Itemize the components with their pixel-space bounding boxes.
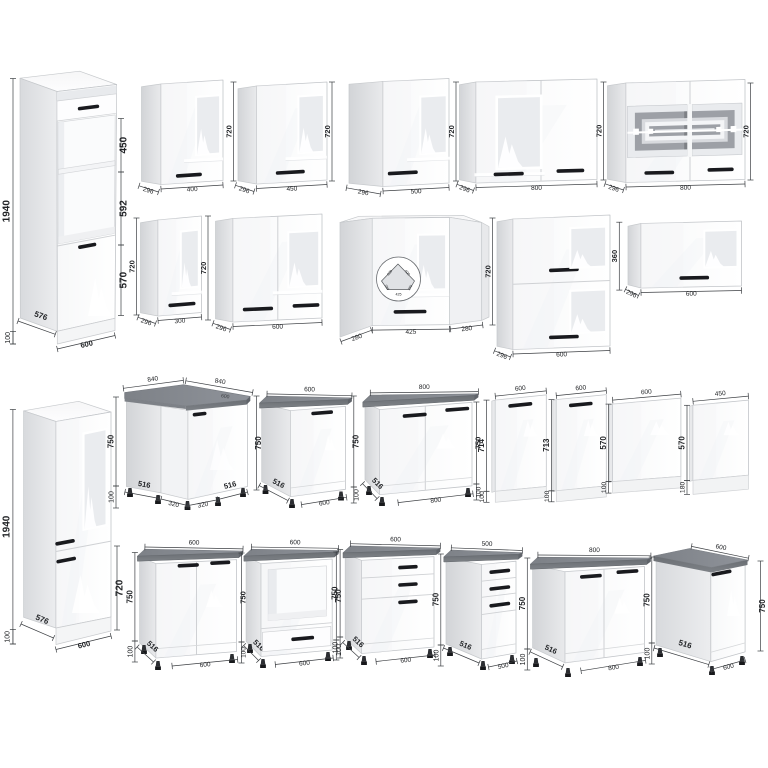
svg-text:100: 100 bbox=[544, 490, 551, 502]
svg-text:750: 750 bbox=[331, 586, 340, 600]
svg-text:600: 600 bbox=[686, 291, 697, 298]
svg-text:100: 100 bbox=[601, 482, 608, 494]
svg-text:425: 425 bbox=[405, 329, 416, 336]
svg-text:450: 450 bbox=[286, 185, 298, 193]
svg-text:1940: 1940 bbox=[2, 200, 13, 223]
svg-text:400: 400 bbox=[187, 186, 199, 194]
svg-text:600: 600 bbox=[515, 385, 527, 393]
svg-text:840: 840 bbox=[147, 375, 159, 383]
svg-text:100: 100 bbox=[353, 489, 360, 501]
svg-text:280: 280 bbox=[461, 325, 473, 333]
svg-text:450: 450 bbox=[715, 390, 727, 398]
svg-text:600: 600 bbox=[390, 536, 401, 543]
svg-text:100: 100 bbox=[333, 642, 340, 654]
svg-text:570: 570 bbox=[119, 271, 130, 288]
svg-text:600: 600 bbox=[641, 388, 653, 396]
svg-text:713: 713 bbox=[542, 438, 551, 452]
svg-text:720: 720 bbox=[127, 260, 136, 273]
svg-text:720: 720 bbox=[115, 579, 126, 596]
svg-text:100: 100 bbox=[5, 332, 12, 344]
svg-text:720: 720 bbox=[224, 125, 233, 138]
svg-text:750: 750 bbox=[431, 592, 440, 606]
svg-text:600: 600 bbox=[272, 323, 284, 331]
svg-text:750: 750 bbox=[758, 599, 767, 613]
svg-text:600: 600 bbox=[575, 384, 587, 392]
svg-text:800: 800 bbox=[419, 384, 430, 391]
svg-text:600: 600 bbox=[299, 660, 311, 668]
svg-text:750: 750 bbox=[642, 593, 651, 607]
svg-text:100: 100 bbox=[433, 650, 440, 662]
svg-text:100: 100 bbox=[520, 654, 527, 666]
svg-text:100: 100 bbox=[644, 648, 651, 660]
svg-text:720: 720 bbox=[199, 262, 208, 275]
svg-text:720: 720 bbox=[741, 125, 750, 138]
svg-text:592: 592 bbox=[119, 200, 130, 217]
svg-text:100: 100 bbox=[5, 631, 12, 643]
svg-text:450: 450 bbox=[119, 136, 130, 153]
svg-text:750: 750 bbox=[351, 434, 360, 448]
svg-text:750: 750 bbox=[107, 434, 116, 448]
svg-text:300: 300 bbox=[174, 317, 186, 325]
svg-text:425: 425 bbox=[396, 293, 402, 297]
svg-text:800: 800 bbox=[680, 185, 691, 192]
svg-text:180: 180 bbox=[679, 482, 686, 494]
svg-text:720: 720 bbox=[594, 125, 603, 138]
svg-text:360: 360 bbox=[610, 250, 619, 263]
svg-text:570: 570 bbox=[599, 436, 608, 450]
svg-text:800: 800 bbox=[589, 547, 600, 554]
svg-text:600: 600 bbox=[189, 539, 200, 546]
svg-text:570: 570 bbox=[677, 436, 686, 450]
svg-text:600: 600 bbox=[199, 661, 211, 669]
svg-text:714: 714 bbox=[477, 438, 486, 452]
svg-text:500: 500 bbox=[411, 188, 423, 196]
svg-text:600: 600 bbox=[400, 657, 412, 665]
svg-text:600: 600 bbox=[556, 351, 567, 358]
svg-text:600: 600 bbox=[304, 386, 315, 393]
svg-text:100: 100 bbox=[109, 491, 116, 503]
svg-text:750: 750 bbox=[518, 596, 527, 610]
svg-text:720: 720 bbox=[447, 125, 456, 138]
svg-text:1940: 1940 bbox=[2, 515, 13, 538]
svg-text:500: 500 bbox=[481, 541, 492, 548]
svg-text:720: 720 bbox=[323, 125, 332, 138]
svg-text:100: 100 bbox=[127, 646, 134, 658]
svg-text:720: 720 bbox=[483, 265, 492, 278]
svg-text:100: 100 bbox=[479, 491, 486, 503]
svg-text:800: 800 bbox=[430, 497, 442, 505]
svg-text:600: 600 bbox=[290, 539, 301, 546]
svg-text:750: 750 bbox=[125, 590, 134, 604]
svg-text:800: 800 bbox=[531, 185, 542, 192]
